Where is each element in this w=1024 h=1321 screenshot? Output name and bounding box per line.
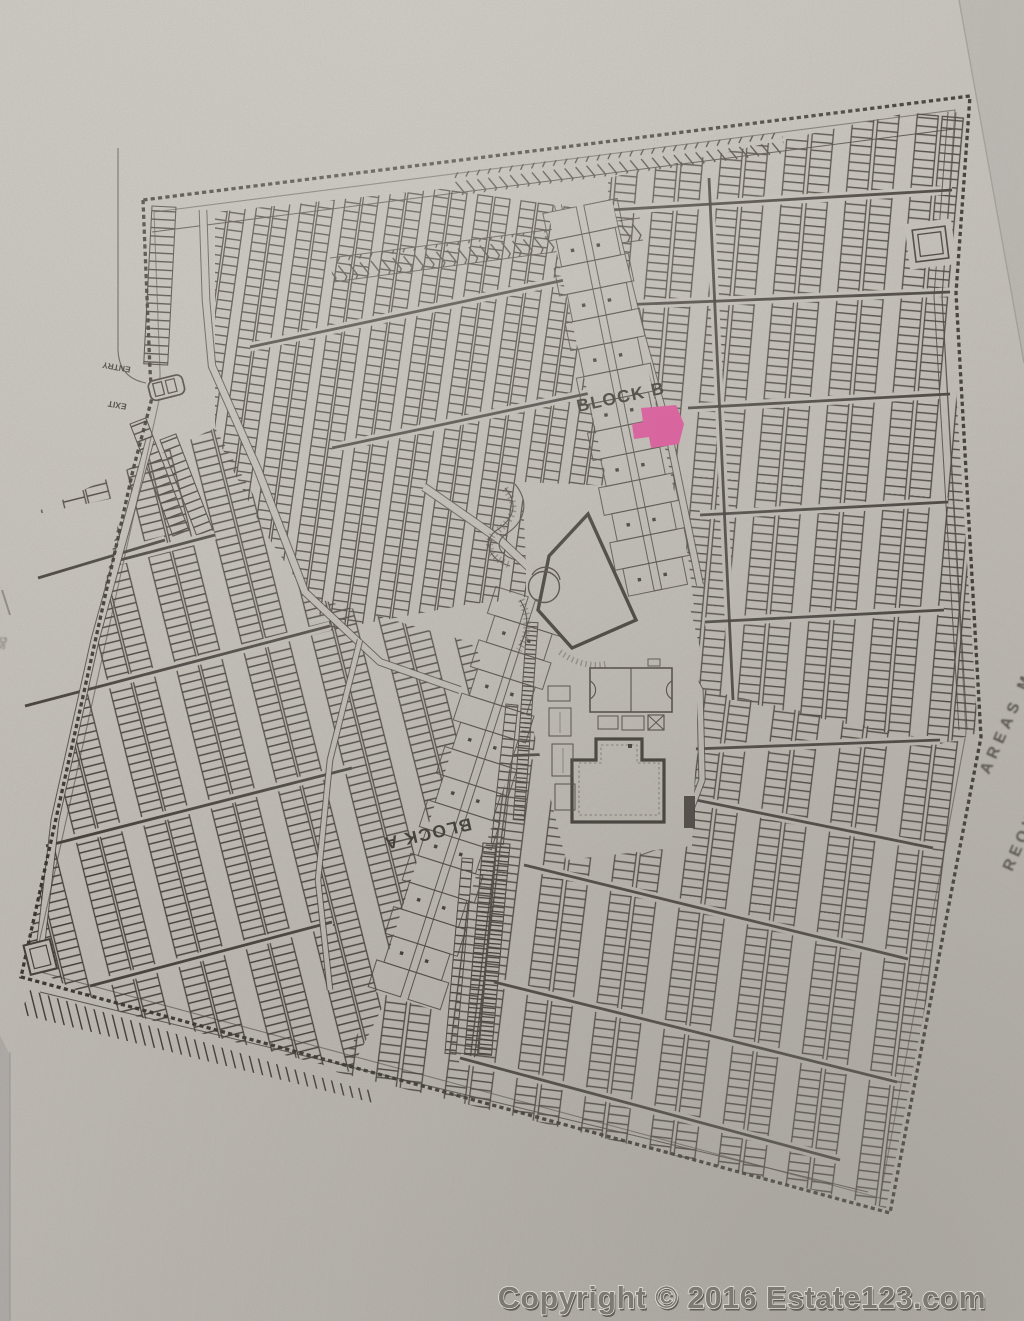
svg-text:Copyright © 2016 Estate123.com: Copyright © 2016 Estate123.com: [498, 1281, 986, 1315]
